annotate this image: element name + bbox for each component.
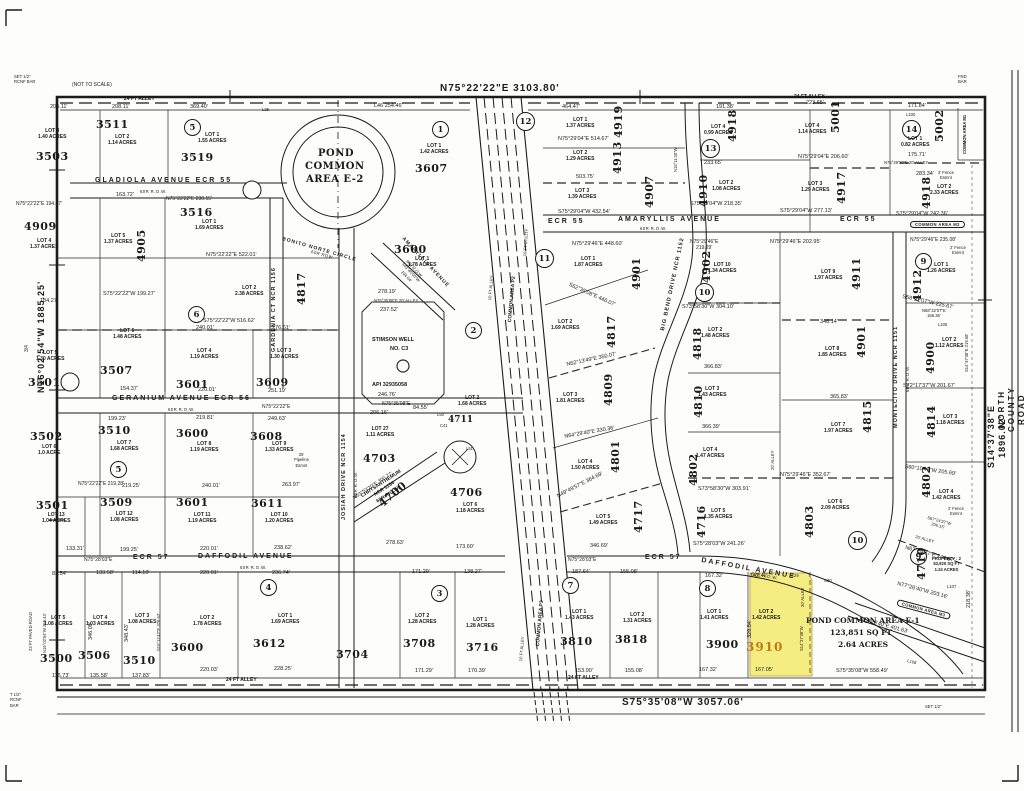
lot-detail: LOT 1 1.55 ACRES: [198, 132, 226, 145]
lot-number: 4706: [450, 486, 483, 499]
dim: L107: [947, 584, 956, 589]
paved-road-note: 23 FT PAVED ROAD: [28, 612, 33, 651]
block-number: 4: [260, 579, 277, 596]
lot-detail: LOT 3 1.81 ACRES: [556, 392, 584, 405]
dim: S73°58'30"W 303.91': [698, 486, 750, 493]
lot-detail: LOT 2 1.31 ACRES: [623, 612, 651, 625]
lot-detail: LOT 10 1.20 ACRES: [265, 512, 293, 525]
lot-detail: LOT 7 1.68 ACRES: [110, 440, 138, 453]
set-half-note: SET 1/2": [925, 704, 942, 709]
dim: N75°29'46"E 235.08': [910, 237, 956, 243]
curve-label: L25: [262, 107, 269, 112]
dim: 115.73': [52, 673, 69, 680]
dim: 366.83': [704, 364, 722, 371]
lot-detail: LOT 5 1.08 ACRES: [44, 615, 72, 628]
street-montecito: MONTECITO DRIVE NCR 1151: [893, 326, 900, 428]
lot-number: 4803: [803, 505, 816, 538]
dim: S75°29'04"W 277.13': [780, 208, 832, 215]
lot-detail: LOT 2 1.78 ACRES: [193, 615, 221, 628]
easement-note: 2' Fence Esmnt: [950, 245, 966, 256]
three-quarter-mark: 3/4: [24, 345, 30, 352]
dim: N75°29'50"E 20' ALLEY: [884, 160, 928, 165]
daffodil-bearing-w: N75°28'03"E: [84, 557, 112, 563]
alley-label: 24 FT ALLEY: [568, 675, 599, 681]
lot-detail: LOT 5 1.49 ACRES: [589, 514, 617, 527]
block-number: 5: [110, 461, 127, 478]
dim: 346.09': [88, 622, 95, 640]
lot-detail: LOT 6 1.0 ACRE: [38, 444, 60, 457]
lot-detail: LOT 2 1.48 ACRES: [701, 327, 729, 340]
lot-detail: LOT 2 1.69 ACRES: [551, 319, 579, 332]
street-ecr55-w: ECR 55: [548, 218, 585, 227]
lot-detail: LOT 1 1.37 ACRES: [566, 117, 594, 130]
block-number: 3: [431, 585, 448, 602]
dim: 278.63': [386, 540, 404, 547]
lot-number: 3519: [181, 151, 214, 164]
dim: 199.23': [108, 416, 126, 423]
dim: 278.19': [378, 289, 396, 296]
dim: S72°17'37"W 201.67': [903, 383, 955, 390]
lot-detail: LOT 8 1.85 ACRES: [818, 346, 846, 359]
lot-detail: LOT 8 1.19 ACRES: [190, 441, 218, 454]
lot-detail: LOT 5 1.37 ACRES: [104, 233, 132, 246]
row-label: 60R R.O.W.: [140, 189, 167, 194]
lot-detail: LOT 10 1.34 ACRES: [708, 262, 736, 275]
street-gardenia: GARDENIA CT NCR 1156: [271, 267, 278, 352]
dim: 251.19': [268, 388, 286, 395]
lot-detail: LOT 3 1.30 ACRES: [270, 348, 298, 361]
dim: 137.83': [132, 673, 150, 680]
dim: N16°02'54"W 255.43': [42, 613, 47, 653]
lot-number: 4703: [363, 452, 396, 465]
block-number: 2: [465, 322, 482, 339]
dim: S75°22'22"W 516.62': [203, 318, 255, 325]
lot-detail: LOT 3 1.18 ACRES: [936, 414, 964, 427]
dim: 365.83': [830, 394, 848, 401]
dim: 184.27': [40, 298, 58, 305]
dim: 220.01': [200, 570, 218, 577]
reinf-bar-note: T 1/2" RCNF BAR: [10, 692, 22, 708]
selected-parcel-3910[interactable]: [750, 572, 812, 677]
dim: 223.65': [806, 100, 824, 107]
dim: S75°22'22"W 199.27': [103, 291, 155, 298]
lot-detail: LOT 2 1.14 ACRES: [108, 134, 136, 147]
lot-number: 4901: [630, 257, 643, 290]
lot-number: 3600: [171, 641, 204, 654]
lot-detail: LOT 4 0.99 ACRES: [704, 124, 732, 137]
dim: 206.16': [370, 410, 388, 417]
street-geranium: GERANIUM AVENUE ECR 56: [112, 395, 251, 404]
lot-detail: LOT 13 1.04 ACRES: [42, 512, 70, 525]
well-label-3: API 32935058: [372, 382, 407, 389]
lot-detail: LOT 3 1.40 ACRES: [38, 128, 66, 141]
dim: S75°29'04"W 242.36': [896, 211, 948, 218]
lot-detail: LOT 1 1.26 ACRES: [927, 262, 955, 275]
lot-detail: LOT 3 1.08 ACRES: [128, 613, 156, 626]
dim: 155.08': [620, 569, 638, 576]
lot-number: 3501: [36, 499, 69, 512]
lot-number: 3502: [30, 430, 63, 443]
row-label: 60R R.O.W.: [168, 407, 195, 412]
dim: 133.58': [96, 570, 114, 577]
lot-detail: LOT 1 1.69 ACRES: [271, 613, 299, 626]
dim: 220.01': [198, 387, 216, 394]
lot-detail: LOT 7 1.97 ACRES: [824, 422, 852, 435]
dim: 237.52': [380, 307, 398, 314]
curve-label: C30: [824, 578, 832, 583]
dim: 206.11': [50, 104, 67, 111]
lot-number: 3708: [403, 637, 436, 650]
block-number: 10: [848, 531, 867, 550]
lot-number: 3501: [28, 376, 61, 389]
dim: 163.72': [116, 192, 134, 199]
lot-detail: LOT 2 1.08 ACRES: [712, 180, 740, 193]
lot-detail: LOT 5 1.30 ACRES: [36, 350, 64, 363]
block-number: 13: [701, 139, 720, 158]
lot-detail: LOT 4 1.42 ACRES: [932, 489, 960, 502]
dim: 135.58': [90, 673, 108, 680]
lot-detail: LOT 2 2.38 ACRES: [235, 285, 263, 298]
dim: 283.34': [916, 171, 934, 178]
dim: S75°29'04"W 218.35': [690, 201, 742, 208]
dim: 114.10': [132, 570, 149, 577]
dim: 175.71': [908, 152, 926, 159]
lot-detail: LOT 4 1.50 ACRES: [571, 459, 599, 472]
lot-detail: LOT 1 1.43 ACRES: [565, 609, 593, 622]
alley-label: 24 FT ALLEY: [124, 96, 155, 102]
well-label-1: STIMSON WELL: [372, 337, 414, 344]
street-ecr57-e: ECR 57: [645, 554, 682, 563]
lot-number: 4905: [135, 229, 148, 262]
lot-number: 3503: [36, 150, 69, 163]
dim: 369.40': [190, 104, 208, 111]
dim: 171.29': [415, 668, 433, 675]
dim: N75°29'46"E 202.95': [770, 239, 821, 246]
lot-detail: LOT 2 1.29 ACRES: [566, 150, 594, 163]
not-to-scale-note: (NOT TO SCALE): [72, 82, 112, 88]
lot-number: 3511: [96, 118, 129, 131]
dim: 220.03': [200, 667, 218, 674]
dim: N75°29'46"E 352.67': [780, 472, 831, 479]
common-area-m1-label: COMMON AREA M1: [962, 115, 967, 154]
pond-e2-label-1: POND: [318, 148, 354, 159]
block-number: 10: [695, 283, 714, 302]
lot-number: 3810: [560, 635, 593, 648]
lot-number: 3601: [176, 496, 209, 509]
lot-number: 4817: [605, 315, 618, 348]
lot-number: 4907: [643, 175, 656, 208]
dim: N75°22'22"E 194.27': [16, 201, 62, 207]
lot-detail: LOT 4 1.19 ACRES: [190, 348, 218, 361]
lot-number: 3716: [466, 641, 499, 654]
dim: 218.38': [966, 590, 973, 608]
lot-number: 4717: [632, 500, 645, 533]
dim: N75°29'04"E 206.60': [798, 154, 849, 161]
dim: L105: [938, 322, 947, 327]
street-ecr57-w: ECR 57: [133, 554, 170, 563]
dim: 346.69': [590, 543, 608, 550]
dim: N75°29'46"E 219.29': [690, 239, 718, 252]
dim: S73°58'30"W 304.10': [682, 304, 734, 311]
lot-number: 3900: [706, 638, 739, 651]
dim: L100: [906, 112, 915, 117]
lot-detail: LOT 2 1.68 ACRES: [458, 395, 486, 408]
lot-detail: LOT 1 1.87 ACRES: [574, 256, 602, 269]
dim: 238.62': [274, 545, 292, 552]
dim: N75°22'22"E 522.01': [206, 252, 257, 259]
lot-detail: LOT 27 1.11 ACRES: [366, 426, 394, 439]
lot-number: 3600: [394, 243, 427, 256]
lot-number: 3510: [98, 424, 131, 437]
block-number: 1: [432, 121, 449, 138]
lot-detail: LOT 1 1.42 ACRES: [420, 143, 448, 156]
lot-number: 3506: [78, 649, 111, 662]
dim: 233.65': [704, 160, 722, 167]
dim: N75°35'08"E: [382, 401, 410, 407]
set-bar-note: SET 1/2" RCNF BAR: [14, 74, 35, 85]
lot-number: 5001: [829, 100, 842, 133]
dim: S15°11'42"E 328.62': [156, 613, 161, 651]
lot-number: 3507: [100, 364, 133, 377]
dim: 348.14': [820, 319, 838, 326]
lot-number: 4711: [448, 415, 473, 425]
alley-label: 20' ALLEY: [770, 451, 775, 470]
common-area-m2-pill: COMMON AREA M2: [910, 221, 965, 228]
dim: N75°29'04"E 514.67': [558, 136, 609, 143]
lot-number: 3500: [40, 652, 73, 665]
dim: S14°37'38"E 219.68': [964, 334, 969, 372]
lot-number: 3607: [415, 162, 448, 175]
lot-number: 4801: [609, 440, 622, 473]
lot-detail: LOT 6 1.18 ACRES: [456, 502, 484, 515]
lot-detail: LOT 2 1.28 ACRES: [408, 613, 436, 626]
dim: 263.97': [282, 482, 300, 489]
block-number: 7: [562, 577, 579, 594]
dim: 249.63': [268, 416, 286, 423]
lot-detail: LOT 4 1.47 ACRES: [696, 447, 724, 460]
street-josiah: JOSIAH DRIVE NCR 1154: [341, 433, 348, 520]
dim: 153.90': [575, 668, 593, 675]
dim: 276.61': [272, 325, 290, 332]
dim: 171.84': [908, 103, 926, 110]
dim: 167.32': [699, 667, 717, 674]
dim: N15°11'40"W: [673, 147, 678, 172]
block-number: 8: [699, 580, 716, 597]
dim: 191.38': [716, 104, 734, 111]
dim: S75°35'08"W 558.49': [836, 668, 888, 675]
dim: 348.43': [124, 624, 131, 642]
street-ecr55-e: ECR 55: [840, 216, 877, 225]
dim: 464.47': [562, 104, 580, 111]
lot-number: 4901: [855, 325, 868, 358]
pipeline-easement-note: 25' Pipeline Esmnt: [294, 452, 309, 468]
lot-detail: LOT 4 1.37 ACRES: [30, 238, 58, 251]
curve-label: L50: [437, 412, 444, 417]
lot-number: 5002: [933, 109, 946, 142]
lot-number: 4809: [602, 373, 615, 406]
street-amaryllis: AMARYLLIS AVENUE: [618, 216, 721, 225]
dim: 240.01': [202, 483, 220, 490]
lot-number: 3612: [253, 637, 286, 650]
dim: 199.25': [120, 547, 138, 554]
dim: 219.81': [196, 415, 214, 422]
lot-detail: LOT 1 1.28 ACRES: [466, 617, 494, 630]
dim: 366.39': [702, 424, 720, 431]
pond-e1-label-3: 2.64 ACRES: [838, 640, 888, 649]
easement-note: 2' Fence Esmnt: [948, 506, 964, 517]
well-symbol: [397, 360, 409, 372]
curve-label: C41: [440, 423, 448, 428]
lot-detail: LOT 3 1.39 ACRES: [568, 188, 596, 201]
dim: 138.27': [464, 569, 482, 576]
dim: N68°22'07"E 166.36': [922, 308, 946, 319]
plat-map-sheet: N75°22'22"E 3103.80' S75°35'08"W 3057.06…: [0, 0, 1024, 791]
lot-number: 3516: [180, 206, 213, 219]
dim: 154.37': [120, 386, 138, 393]
lot-detail: LOT 2 2.33 ACRES: [930, 184, 958, 197]
block-number: 11: [535, 249, 554, 268]
dim: 171.29': [412, 569, 430, 576]
dim: 220.01': [200, 546, 218, 553]
lot-detail: LOT 6 1.48 ACRES: [113, 328, 141, 341]
north-boundary-bearing: N75°22'22"E 3103.80': [440, 83, 560, 96]
dim: 240.01': [196, 325, 214, 332]
lot-number: 3510: [123, 654, 156, 667]
lot-detail: LOT 2 1.12 ACRES: [935, 337, 963, 350]
well-label-2: NO. C3: [390, 346, 408, 353]
street-daffodil-w: DAFFODIL AVENUE: [198, 553, 294, 562]
dim: 219.25': [122, 483, 140, 490]
row-label: 60R R.O.W.: [240, 565, 267, 570]
alley-label: N75°35'08"E 20' ALLEY: [374, 298, 418, 303]
lot-detail: LOT 3 1.29 ACRES: [801, 181, 829, 194]
lot-number: 3600: [176, 427, 209, 440]
lot-detail: LOT 9 1.97 ACRES: [814, 269, 842, 282]
lot-detail: LOT 3 1.43 ACRES: [698, 386, 726, 399]
dim: 83.54': [52, 571, 67, 578]
block-number: 12: [516, 112, 535, 131]
dim: 173.60': [456, 544, 474, 551]
dim: N75°22'22"E 219.28': [78, 481, 124, 487]
dim: 187.64': [572, 569, 590, 576]
dim: 167.32': [705, 573, 723, 580]
dim: S75°29'04"W 432.54': [558, 209, 610, 216]
pond-e2-label-2: COMMON: [305, 161, 365, 172]
easement-note: 2' Fence Esmnt: [938, 170, 954, 181]
curve-label: L51: [466, 446, 473, 451]
dim: 503.75': [576, 174, 594, 181]
dim: 208.11': [112, 104, 129, 111]
lot-number: 3704: [336, 648, 369, 661]
lot-detail: LOT 9 1.33 ACRES: [265, 441, 293, 454]
dim: N75°29'46"E 448.60': [572, 241, 623, 248]
geranium-bearing: N75°22'22"E: [262, 404, 290, 410]
alley-label: 24 FT ALLEY: [794, 94, 825, 100]
dim: 236.74': [272, 570, 290, 577]
lot-number: 4913: [611, 141, 624, 174]
lot-number: 4917: [835, 171, 848, 204]
dim: 170.39': [468, 668, 486, 675]
lot-number: 4817: [295, 272, 308, 305]
lot-detail: LOT 6 2.09 ACRES: [821, 499, 849, 512]
lot-number: 4919: [612, 105, 625, 138]
lot-detail: LOT 11 1.19 ACRES: [188, 512, 216, 525]
lot-detail: LOT 1 0.82 ACRES: [901, 136, 929, 149]
dim: S75°28'03"W 241.26': [693, 541, 745, 548]
lot-detail: LOT 4 1.14 ACRES: [798, 123, 826, 136]
dim: 155.08': [625, 668, 643, 675]
lot-number: 3818: [615, 633, 648, 646]
pond-e2-label-3: AREA E-2: [306, 174, 364, 185]
lot-number: 4815: [861, 400, 874, 433]
lot-number: 3611: [251, 497, 284, 510]
lot-number: 4909: [24, 220, 57, 233]
dim: N75°22'22"E 230.15': [166, 196, 212, 202]
railroad-corridor: [476, 97, 578, 724]
pond-e2-circle: [293, 127, 383, 217]
dim: 228.25': [274, 666, 292, 673]
street-gladiola: GLADIOLA AVENUE ECR 55: [95, 177, 232, 186]
dim: L46 254.46': [374, 103, 403, 110]
daffodil-bearing-e: N75°28'03"E: [568, 557, 596, 563]
dim: 84.55': [413, 405, 428, 412]
dim: 246.76': [378, 392, 396, 399]
alley-label: 24 FT ALLEY: [226, 677, 257, 683]
row-label: 60R R.O.W.: [640, 226, 667, 231]
lot-detail: LOT 12 1.08 ACRES: [110, 511, 138, 524]
street-north-county-road: NORTH COUNTY ROAD 1150: [997, 386, 1024, 432]
found-bar-note: FND BAR: [958, 74, 967, 85]
lot-detail: LOT 5 1.35 ACRES: [704, 508, 732, 521]
lot-number: 4911: [850, 257, 863, 290]
south-boundary-bearing: S75°35'08"W 3057.06': [622, 697, 744, 710]
lot-detail: LOT 1 1.41 ACRES: [700, 609, 728, 622]
dim: 133.31': [66, 546, 84, 553]
lot-detail: LOT 1 1.69 ACRES: [195, 219, 223, 232]
lot-number: 3509: [100, 496, 133, 509]
